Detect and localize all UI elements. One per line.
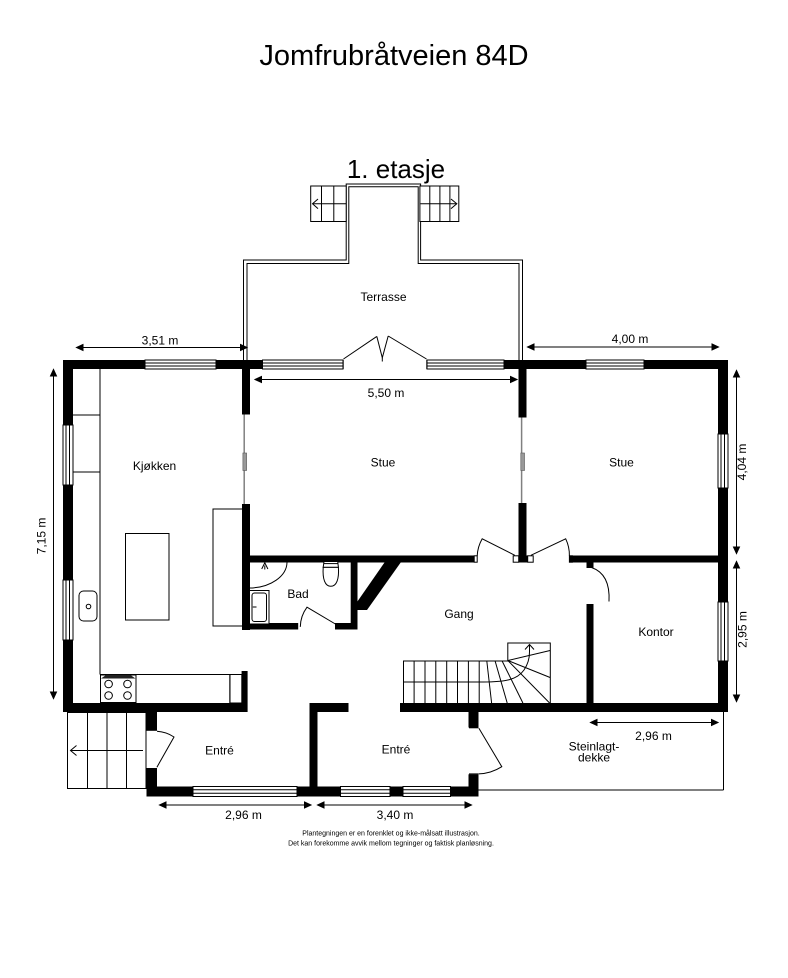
svg-text:Stue: Stue [609, 456, 634, 470]
svg-text:Kontor: Kontor [638, 625, 673, 639]
svg-text:Entré: Entré [382, 743, 411, 757]
svg-text:Entré: Entré [205, 744, 234, 758]
svg-text:Bad: Bad [287, 587, 308, 601]
svg-text:dekke: dekke [578, 751, 610, 765]
svg-text:Kjøkken: Kjøkken [133, 459, 176, 473]
svg-text:2,96 m: 2,96 m [225, 808, 262, 822]
svg-text:Terrasse: Terrasse [360, 290, 406, 304]
svg-text:2,95 m: 2,95 m [736, 611, 750, 648]
svg-text:7,15 m: 7,15 m [35, 518, 49, 555]
svg-text:Stue: Stue [371, 456, 396, 470]
svg-text:Plantegningen er en forenklet: Plantegningen er en forenklet og ikke-må… [302, 830, 479, 838]
svg-text:3,51 m: 3,51 m [142, 334, 179, 348]
svg-text:5,50 m: 5,50 m [368, 386, 405, 400]
svg-text:3,40 m: 3,40 m [377, 808, 414, 822]
svg-text:2,96 m: 2,96 m [635, 729, 672, 743]
svg-text:1. etasje: 1. etasje [347, 154, 445, 184]
svg-text:Det kan forekomme avvik mellom: Det kan forekomme avvik mellom tegninger… [288, 841, 494, 848]
svg-text:Jomfrubråtveien 84D: Jomfrubråtveien 84D [259, 40, 528, 72]
svg-text:4,04 m: 4,04 m [735, 444, 749, 481]
svg-text:4,00 m: 4,00 m [612, 332, 649, 346]
svg-text:Gang: Gang [444, 607, 473, 621]
